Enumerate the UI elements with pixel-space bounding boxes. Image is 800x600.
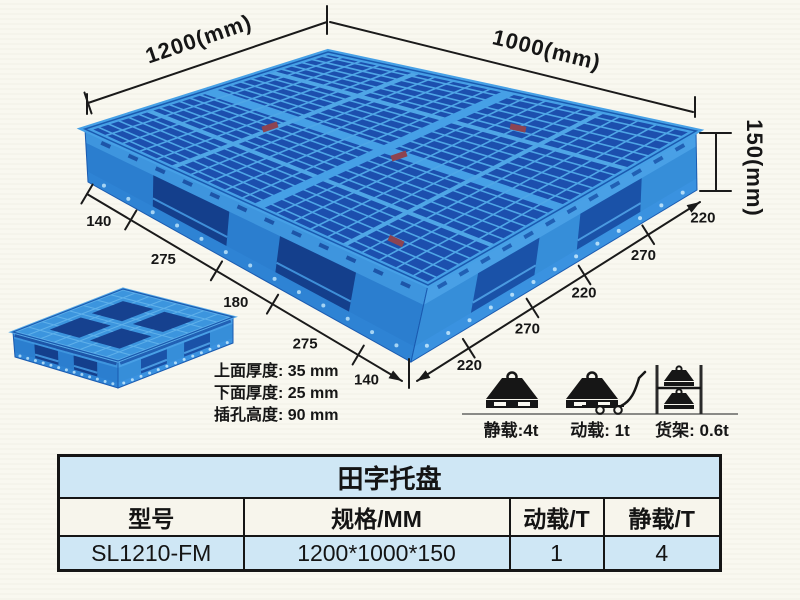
small-right-perforation <box>200 351 203 354</box>
dim-segment-label: 180 <box>223 294 248 311</box>
right-perforation <box>489 305 493 309</box>
dimension-tick <box>642 225 654 244</box>
small-right-perforation <box>174 361 177 364</box>
header-size: 规格/MM <box>244 498 510 536</box>
small-right-perforation <box>191 355 194 358</box>
small-left-perforation <box>42 361 45 364</box>
bottom-thickness-note: 下面厚度: 25 mm <box>214 383 338 402</box>
width-dimension-label: 1000(mm) <box>490 24 603 75</box>
left-perforation <box>321 303 325 307</box>
rack-load-label: 货架: 0.6t <box>655 420 729 440</box>
small-right-perforation <box>131 378 134 381</box>
dim-segment-label: 220 <box>572 285 597 302</box>
dim-segment-label: 220 <box>457 357 482 374</box>
dimension-tick <box>353 346 364 365</box>
right-perforation <box>681 191 685 195</box>
static-load-label: 静载:4t <box>484 420 539 440</box>
cell-size: 1200*1000*150 <box>244 536 510 571</box>
small-left-perforation <box>49 364 52 367</box>
static-load-weight-icon <box>486 373 538 409</box>
small-right-perforation <box>140 375 143 378</box>
dim-segment-label: 140 <box>86 213 111 230</box>
dimension-tick <box>267 295 278 314</box>
right-perforation <box>574 254 578 258</box>
left-perforation <box>126 197 130 201</box>
cell-static-load: 4 <box>604 536 721 571</box>
left-perforation <box>248 264 252 268</box>
small-right-perforation <box>217 345 220 348</box>
small-right-perforation <box>165 365 168 368</box>
length-dimension-label: 1200(mm) <box>142 9 255 68</box>
dim-segment-label: 275 <box>151 251 176 268</box>
height-dimension-label: 150(mm) <box>742 119 767 216</box>
small-left-perforation <box>34 359 37 362</box>
right-perforation <box>638 216 642 220</box>
pallet-spec-sheet: 140275180275140220270220270220 1200(mm) … <box>0 0 800 600</box>
small-left-perforation <box>26 357 29 360</box>
left-perforation <box>297 290 301 294</box>
small-pallet-thumbnail <box>13 289 233 388</box>
header-dynamic-load: 动载/T <box>510 498 604 536</box>
right-perforation <box>595 242 599 246</box>
dimension-arrowhead <box>417 370 430 381</box>
left-perforation <box>370 330 374 334</box>
right-perforation <box>617 229 621 233</box>
right-perforation <box>531 280 535 284</box>
small-left-perforation <box>111 382 114 385</box>
spec-table-header-row: 型号 规格/MM 动载/T 静载/T <box>59 498 721 536</box>
small-right-perforation <box>226 341 229 344</box>
dimension-tick <box>527 299 539 318</box>
small-right-perforation <box>122 382 125 385</box>
dim-segment-label: 220 <box>690 209 715 226</box>
left-perforation <box>102 184 106 188</box>
dynamic-load-trolley-icon <box>566 372 645 414</box>
top-thickness-note: 上面厚度: 35 mm <box>214 361 338 380</box>
right-perforation <box>553 267 557 271</box>
left-perforation <box>151 210 155 214</box>
thickness-annotations: 上面厚度: 35 mm 下面厚度: 25 mm 插孔高度: 90 mm <box>214 361 338 424</box>
small-left-perforation <box>104 380 107 383</box>
small-right-perforation <box>157 368 160 371</box>
dimension-tick <box>125 211 136 230</box>
spec-table-title: 田字托盘 <box>59 456 721 499</box>
spec-table: 田字托盘 型号 规格/MM 动载/T 静载/T SL1210-FM 1200*1… <box>57 454 722 572</box>
dim-segment-label: 270 <box>631 247 656 264</box>
spec-table-data-row: SL1210-FM 1200*1000*150 1 4 <box>59 536 721 571</box>
small-left-perforation <box>80 373 83 376</box>
rack-load-shelf-icon <box>657 365 701 414</box>
header-static-load: 静载/T <box>604 498 721 536</box>
left-perforation <box>224 250 228 254</box>
left-perforation <box>346 317 350 321</box>
dim-segment-label: 275 <box>293 335 318 352</box>
load-rating-icons: 静载:4t 动载: 1t 货架: 0.6t <box>462 365 738 440</box>
small-left-perforation <box>65 368 68 371</box>
dim-segment-label: 270 <box>515 320 540 337</box>
dimension-arrowhead <box>389 371 403 382</box>
right-perforation <box>446 331 450 335</box>
cell-model: SL1210-FM <box>59 536 244 571</box>
dim-segment-label: 140 <box>354 372 379 389</box>
right-perforation <box>659 203 663 207</box>
left-perforation <box>175 224 179 228</box>
small-left-perforation <box>57 366 60 369</box>
dimension-tick <box>211 261 222 280</box>
small-left-perforation <box>88 375 91 378</box>
right-perforation <box>425 344 429 348</box>
small-left-perforation <box>73 371 76 374</box>
small-right-perforation <box>183 358 186 361</box>
cell-dynamic-load: 1 <box>510 536 604 571</box>
left-perforation <box>394 343 398 347</box>
left-perforation <box>273 277 277 281</box>
small-right-perforation <box>148 371 151 374</box>
small-left-perforation <box>18 355 21 358</box>
dimension-tick <box>579 266 591 285</box>
right-perforation <box>510 293 514 297</box>
dimension-tick <box>463 339 475 358</box>
dimension-tick <box>81 185 92 204</box>
fork-height-note: 插孔高度: 90 mm <box>214 405 338 424</box>
header-model: 型号 <box>59 498 244 536</box>
left-perforation <box>199 237 203 241</box>
dynamic-load-label: 动载: 1t <box>570 420 630 440</box>
right-perforation <box>468 318 472 322</box>
small-right-perforation <box>209 348 212 351</box>
small-left-perforation <box>96 378 99 381</box>
